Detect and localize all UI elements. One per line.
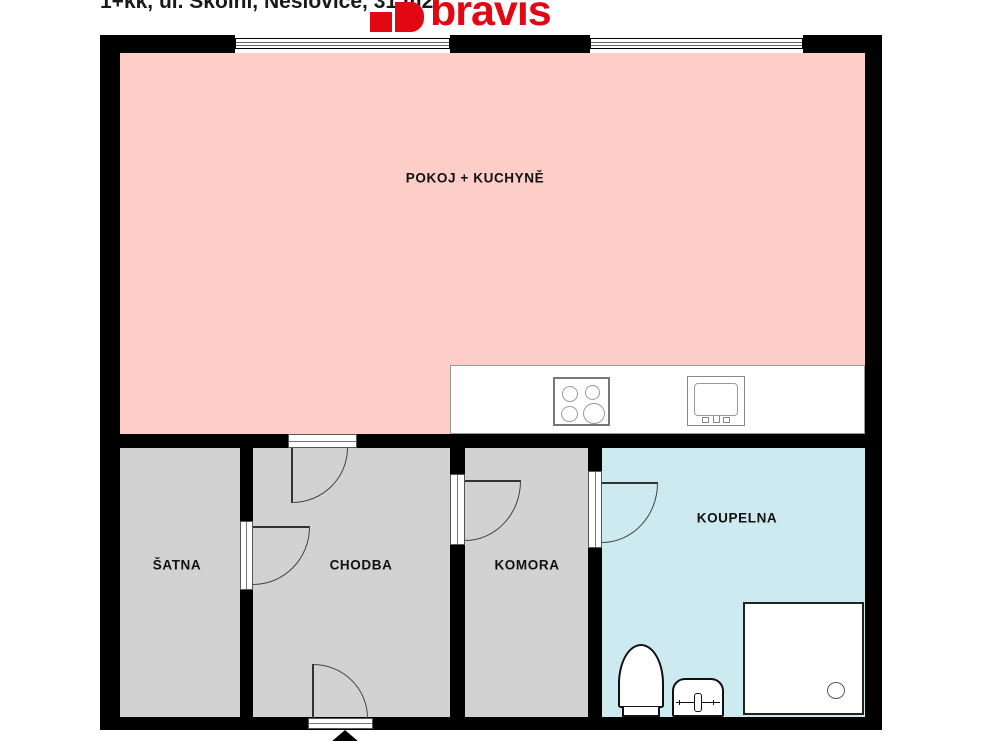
window-icon — [590, 35, 803, 53]
wall-top-left — [100, 35, 235, 53]
window-frame — [235, 38, 450, 49]
floor-plan-page: 1+kk, ul. Školní, Neslovice, 31 m2 bravi… — [0, 0, 988, 741]
window-icon — [235, 35, 450, 53]
washbasin-tick — [713, 700, 718, 705]
wall-left — [100, 35, 120, 730]
room-label-pokoj: POKOJ + KUCHYNĚ — [406, 171, 544, 186]
kitchen-sink-icon — [687, 376, 745, 426]
room-chodba — [253, 448, 450, 717]
door-frame-koupelna — [588, 471, 602, 548]
room-label-satna: ŠATNA — [153, 558, 202, 573]
room-label-komora: KOMORA — [494, 558, 559, 573]
sink-handle — [702, 417, 709, 423]
door-frame-komora — [450, 474, 465, 545]
kitchen-counter — [450, 365, 865, 434]
stove-burner — [583, 403, 605, 424]
window-frame — [590, 38, 803, 49]
logo-mark-right-block — [395, 2, 424, 32]
door-frame-satna — [240, 521, 253, 590]
logo-mark-icon — [368, 0, 426, 32]
shower-drain — [827, 682, 845, 699]
wall-right — [865, 35, 882, 730]
sink-handle — [723, 417, 730, 423]
wall-top-middle — [450, 35, 590, 53]
stove-icon — [553, 377, 610, 426]
washbasin-icon — [672, 678, 724, 717]
wall-top-right — [803, 35, 882, 53]
door-frame-entrance — [308, 718, 373, 729]
washbasin-tick — [679, 700, 684, 705]
logo-mark-left-block — [370, 12, 392, 32]
stove-burner — [561, 406, 578, 422]
wall-bottom — [100, 717, 882, 730]
wall-middle-horizontal — [100, 434, 882, 448]
stove-burner — [585, 385, 600, 400]
stove-burner — [562, 386, 578, 402]
washbasin-faucet — [694, 693, 702, 712]
toilet-base — [622, 706, 660, 717]
brand-logo: bravis — [368, 0, 628, 34]
room-label-chodba: CHODBA — [330, 558, 393, 573]
room-satna — [120, 448, 240, 717]
brand-logo-text: bravis — [430, 0, 551, 33]
shower-icon — [743, 602, 864, 715]
room-label-koupelna: KOUPELNA — [697, 511, 778, 526]
sink-basin — [694, 383, 738, 416]
door-frame-pokoj-chodba — [288, 434, 357, 448]
entrance-arrow-icon — [331, 730, 359, 741]
